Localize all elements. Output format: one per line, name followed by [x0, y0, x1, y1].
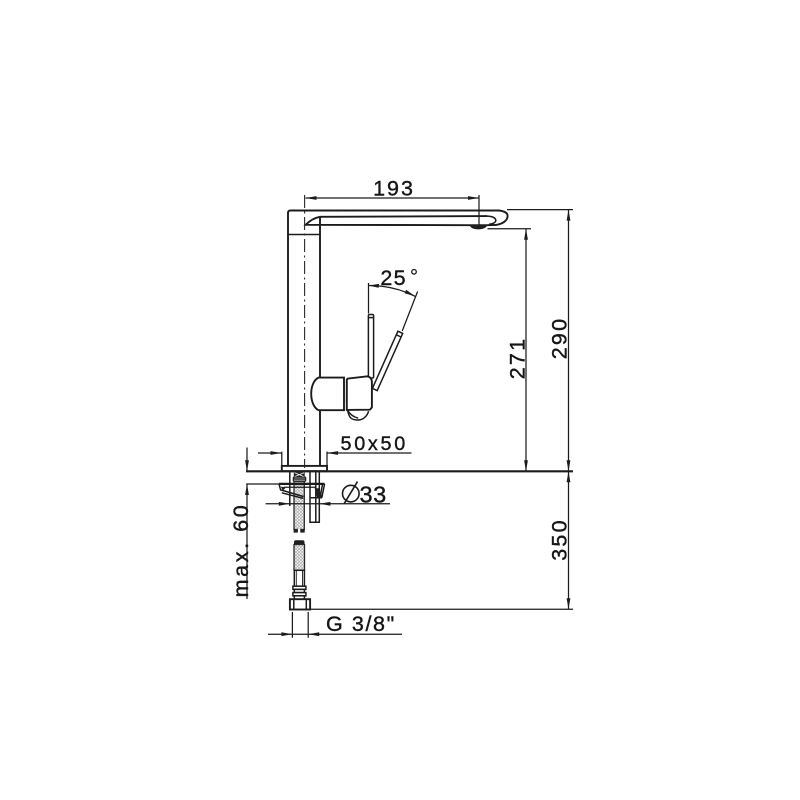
- svg-text:50x50: 50x50: [341, 433, 408, 455]
- svg-text:max. 60: max. 60: [229, 503, 253, 598]
- svg-text:350: 350: [548, 518, 572, 560]
- svg-text:290: 290: [548, 317, 572, 359]
- svg-text:271: 271: [506, 337, 530, 379]
- svg-text:33: 33: [360, 482, 387, 508]
- svg-text:193: 193: [373, 177, 415, 201]
- svg-text:25: 25: [380, 266, 407, 290]
- svg-text:G 3/8": G 3/8": [326, 612, 396, 636]
